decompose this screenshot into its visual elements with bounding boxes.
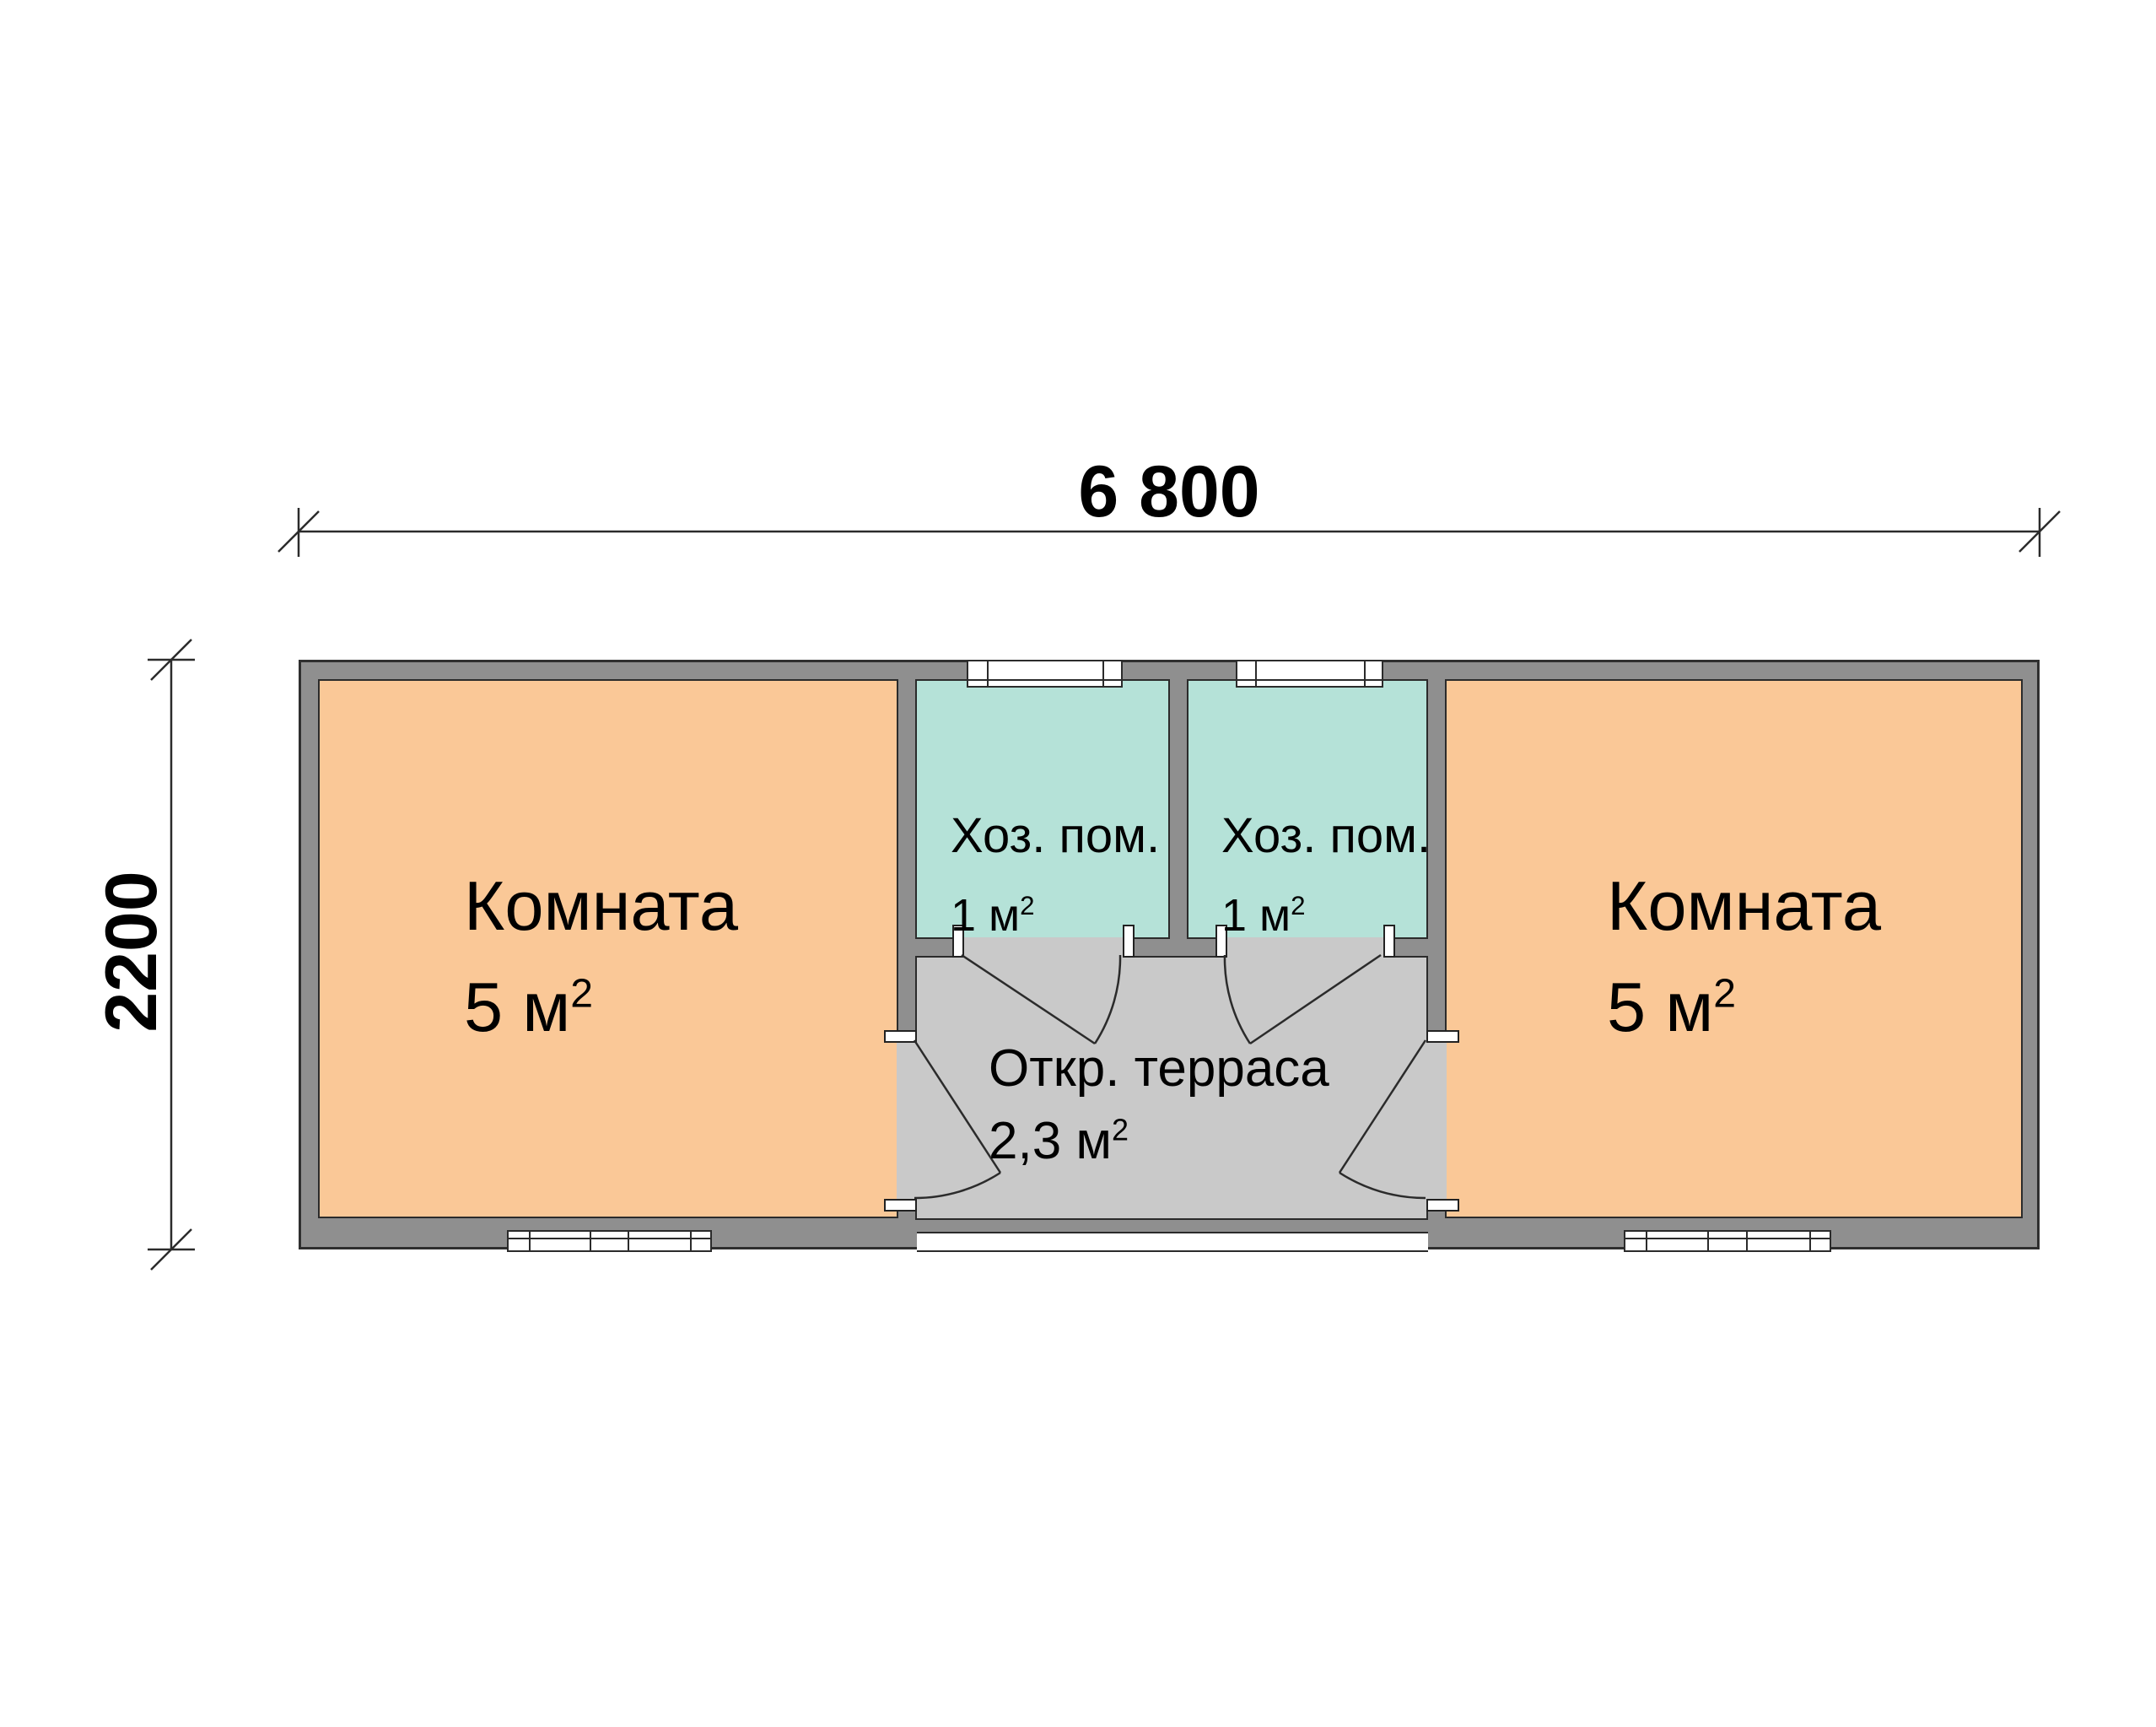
- utility-left-area: 1 м2: [951, 893, 1035, 938]
- utility-left-name: Хоз. пом.: [951, 812, 1160, 861]
- door-swing-utility-right: [1225, 955, 1381, 1044]
- dimension-height-text: 2200: [95, 871, 168, 1032]
- room-left-area: 5 м2: [464, 972, 593, 1042]
- room-right-area: 5 м2: [1607, 972, 1736, 1042]
- door-swing-utility-left: [962, 955, 1120, 1044]
- floor-plan-canvas: 6 800 2200 Комната 5 м2 Комната 5 м2 Хоз…: [0, 0, 2156, 1727]
- terrace-area: 2,3 м2: [989, 1115, 1129, 1168]
- terrace-name: Откр. терраса: [989, 1043, 1329, 1095]
- utility-right-area: 1 м2: [1221, 893, 1306, 938]
- room-right-name: Комната: [1607, 871, 1881, 941]
- utility-right-name: Хоз. пом.: [1221, 812, 1431, 861]
- door-swing-room-left: [914, 1040, 1000, 1198]
- door-swing-room-right: [1339, 1040, 1426, 1198]
- dimension-width-text: 6 800: [1078, 456, 1259, 528]
- room-left-name: Комната: [464, 871, 738, 941]
- drawing-annotations: [0, 0, 2156, 1727]
